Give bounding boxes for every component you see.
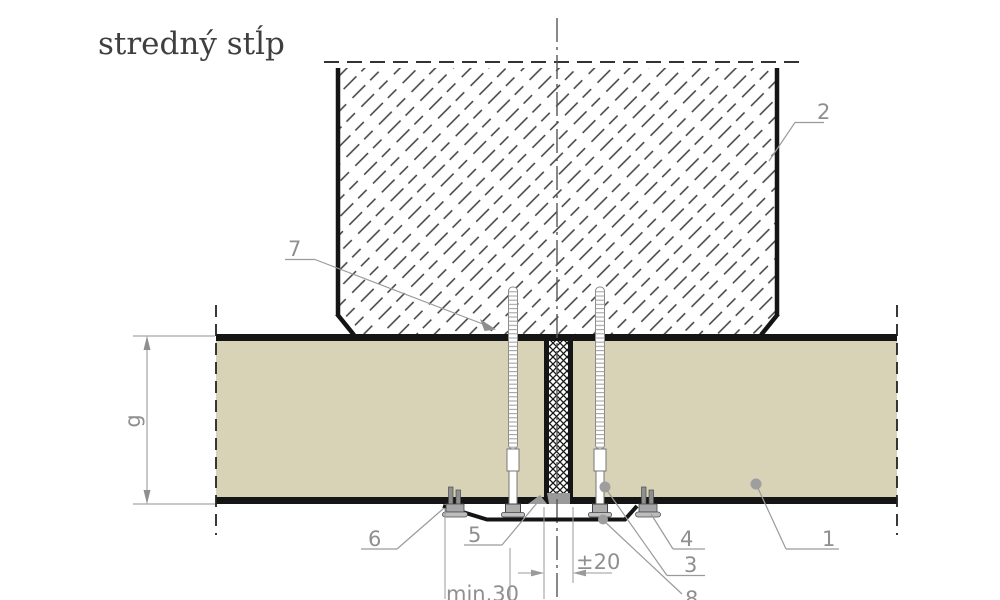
drawing-title: stredný stĺp <box>98 24 285 62</box>
screw-head <box>593 504 608 513</box>
technical-drawing-page: g ±20 min.30 7 2 1 <box>0 0 1000 600</box>
leader-dot <box>600 482 611 493</box>
screw-washer <box>636 512 661 517</box>
dimension-tolerance-text: ±20 <box>576 550 620 574</box>
screw-head <box>506 504 521 513</box>
left-panel-core <box>216 341 544 497</box>
svg-text:8: 8 <box>685 587 698 600</box>
screw-head <box>639 504 657 512</box>
svg-text:1: 1 <box>822 527 835 551</box>
right-panel-bottom-facing <box>573 497 897 504</box>
part-label-5: 5 <box>464 503 537 547</box>
screw-washer <box>502 513 525 518</box>
joint-insulation-strip <box>549 341 568 493</box>
svg-text:3: 3 <box>684 553 697 577</box>
svg-text:7: 7 <box>288 237 301 261</box>
right-panel-joint-edge <box>568 334 573 504</box>
screw-sleeve <box>594 449 606 471</box>
part-label-4: 4 <box>651 514 705 551</box>
screw-sleeve <box>507 449 519 471</box>
leader-dot <box>751 479 762 490</box>
svg-text:4: 4 <box>680 527 693 551</box>
part-label-6: 6 <box>361 508 444 551</box>
dimension-min-30: min.30 <box>445 508 519 600</box>
dimension-g-text: g <box>121 414 145 427</box>
screw-shank <box>509 471 517 504</box>
joint-sealant <box>547 493 570 504</box>
screw-thread <box>596 290 605 448</box>
technical-drawing-canvas: g ±20 min.30 7 2 1 <box>0 0 1000 600</box>
screw-washer <box>443 512 468 517</box>
screw-thread <box>509 290 518 448</box>
dimension-min30-text: min.30 <box>446 582 519 600</box>
timber-column <box>324 62 800 335</box>
left-panel-bottom-facing <box>216 497 544 504</box>
screw-head <box>446 504 464 512</box>
left-panel-joint-edge <box>544 334 549 504</box>
svg-text:6: 6 <box>368 527 381 551</box>
dimension-g: g <box>121 336 215 504</box>
right-panel-core <box>573 341 897 497</box>
svg-text:5: 5 <box>468 523 481 547</box>
svg-text:2: 2 <box>817 100 830 124</box>
